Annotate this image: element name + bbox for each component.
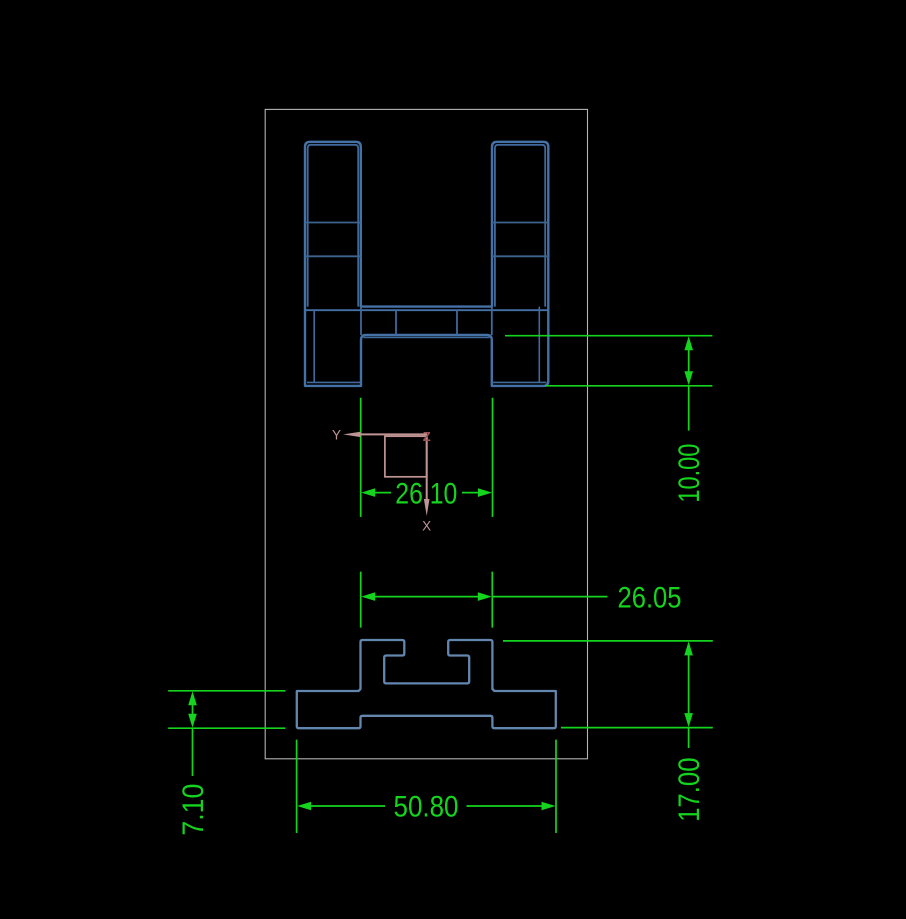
svg-text:7.10: 7.10	[177, 784, 210, 836]
svg-text:Z: Z	[423, 429, 431, 444]
svg-text:10.00: 10.00	[673, 444, 706, 503]
svg-text:Y: Y	[332, 428, 341, 443]
svg-text:17.00: 17.00	[673, 757, 706, 822]
svg-text:26.05: 26.05	[618, 581, 682, 614]
svg-text:50.80: 50.80	[394, 791, 459, 824]
svg-text:X: X	[422, 519, 431, 534]
